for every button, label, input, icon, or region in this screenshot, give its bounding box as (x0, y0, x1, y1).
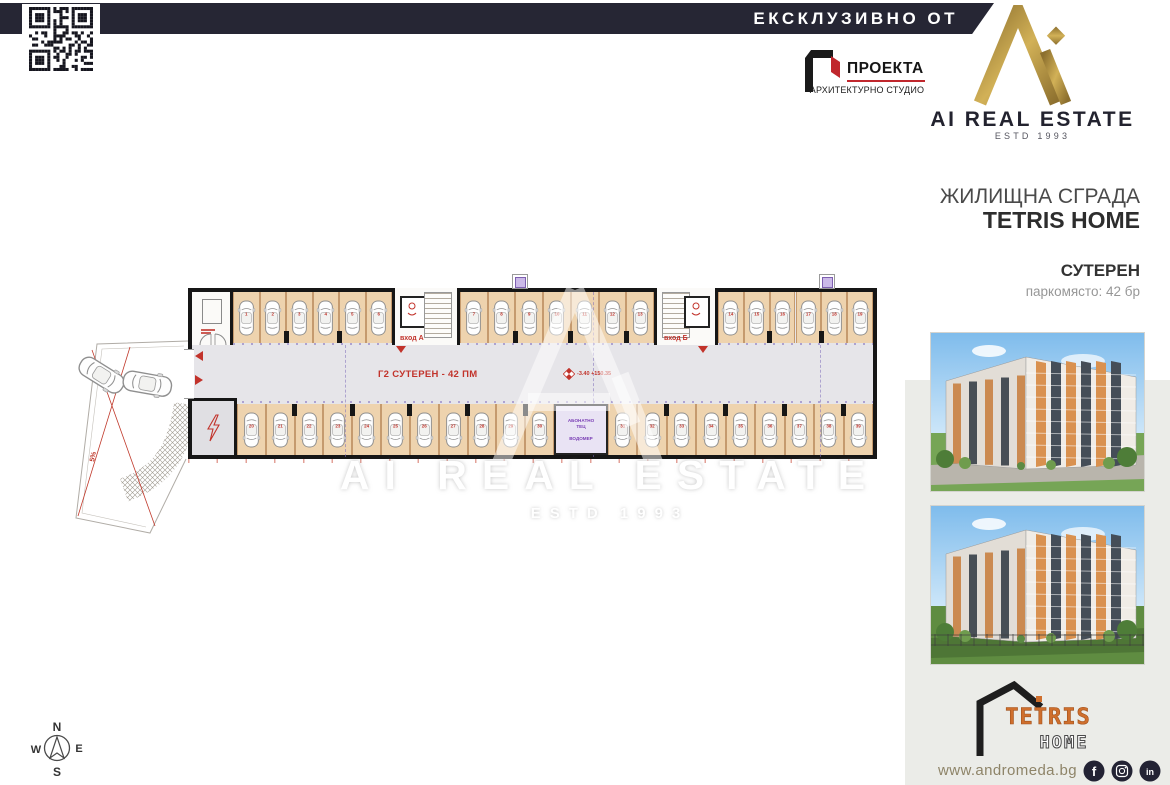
wall-stub (723, 404, 728, 416)
svg-text:f: f (1092, 764, 1097, 779)
exclusive-banner-label: ЕКСКЛУЗИВНО ОТ (753, 9, 958, 29)
utility-label-2: ТЕЦ (576, 424, 585, 430)
car-icon (798, 295, 819, 341)
car-icon (759, 407, 780, 453)
parking-stall: 13 (626, 292, 654, 343)
compass-s: S (53, 765, 61, 779)
stall-number: 15 (754, 312, 759, 317)
stall-number: 10 (554, 312, 559, 317)
vent-shaft-icon (819, 274, 835, 289)
parking-stall: 34 (696, 404, 725, 455)
stall-number: 25 (393, 424, 398, 429)
stall-number: 30 (537, 424, 542, 429)
wall-stub (513, 331, 518, 343)
stall-number: 9 (528, 312, 531, 317)
car-icon (289, 295, 310, 341)
wall-stub (407, 404, 412, 416)
compass-e: E (75, 743, 82, 755)
parking-stall: 10 (543, 292, 571, 343)
direction-wedge-b (698, 346, 708, 353)
stall-number: 20 (249, 424, 254, 429)
car-icon (491, 295, 512, 341)
parking-stall: 21 (266, 404, 295, 455)
parking-stall: 8 (488, 292, 516, 343)
car-icon (612, 407, 633, 453)
facebook-icon: f (1084, 761, 1105, 782)
wall-stub (523, 404, 528, 416)
linkedin-icon: in (1140, 761, 1161, 782)
building-photo-1 (930, 332, 1145, 492)
car-icon (529, 407, 550, 453)
project-parking-info: паркомясто: 42 бр (850, 284, 1140, 299)
parking-stall: 36 (755, 404, 784, 455)
car-icon (356, 407, 377, 453)
car-icon (270, 407, 291, 453)
stall-number: 35 (738, 424, 743, 429)
parking-stall: 11 (571, 292, 599, 343)
stall-number: 18 (832, 312, 837, 317)
parking-stall: 25 (381, 404, 410, 455)
exclusive-banner: ЕКСКЛУЗИВНО ОТ (0, 3, 994, 34)
parking-stall: 30 (525, 404, 554, 455)
car-icon (602, 295, 623, 341)
project-name: TETRIS HOME (850, 208, 1140, 233)
parking-stall: 31 (608, 404, 637, 455)
social-icons: f in (1082, 758, 1164, 784)
stall-number: 17 (806, 312, 811, 317)
accessibility-icon (686, 298, 706, 322)
stall-number: 16 (780, 312, 785, 317)
parking-stall: 6 (366, 292, 393, 343)
direction-wedge-a (396, 346, 406, 353)
stall-number: 8 (500, 312, 503, 317)
car-icon (315, 295, 336, 341)
parking-stall: 20 (237, 404, 266, 455)
watermark-estd: ESTD 1993 (320, 505, 900, 522)
parking-stall: 4 (313, 292, 340, 343)
stall-number: 1 (245, 312, 248, 317)
stall-number: 27 (451, 424, 456, 429)
website-url: www.andromeda.bg (938, 762, 1077, 779)
car-icon (848, 407, 869, 453)
stall-number: 7 (473, 312, 476, 317)
parking-stall: 38 (814, 404, 843, 455)
elevation-label: -3.40 +150.35 (577, 371, 611, 377)
stall-number: 19 (858, 312, 863, 317)
brand-estd: ESTD 1993 (910, 131, 1155, 141)
parking-stall: 12 (599, 292, 627, 343)
car-icon (730, 407, 751, 453)
stall-number: 22 (307, 424, 312, 429)
garage-gate-opening (184, 349, 194, 399)
stall-number: 33 (679, 424, 684, 429)
parking-stall: 9 (515, 292, 543, 343)
car-icon (262, 295, 283, 341)
parking-stall: 16 (770, 292, 796, 343)
car-icon (299, 407, 320, 453)
parking-stall: 39 (844, 404, 873, 455)
stall-number: 5 (351, 312, 354, 317)
stall-number: 39 (856, 424, 861, 429)
car-icon (824, 295, 845, 341)
accessibility-icon (402, 298, 422, 322)
wall-stub (465, 404, 470, 416)
car-icon (471, 407, 492, 453)
parking-stall: 5 (339, 292, 366, 343)
entrance-a: вход А (392, 288, 460, 345)
parking-stall: 24 (352, 404, 381, 455)
wall-stub (568, 331, 573, 343)
parking-stall: 33 (667, 404, 696, 455)
parking-stall: 23 (323, 404, 352, 455)
ramp-arrow-in (195, 351, 203, 361)
project-panel: ЖИЛИЩНА СГРАДА TETRIS HOME СУТЕРЕН парко… (850, 186, 1140, 299)
parking-stall: 14 (718, 292, 744, 343)
stall-number: 11 (582, 312, 587, 317)
compass-rose: N S W E (30, 712, 100, 782)
wall-stub (337, 331, 342, 343)
qr-code (22, 4, 100, 74)
dim-dots-top (233, 343, 873, 345)
car-icon (818, 407, 839, 453)
entrance-b-label: вход Б (664, 335, 688, 342)
parking-stall: 27 (439, 404, 468, 455)
stall-number: 34 (709, 424, 714, 429)
tetris-logo-title: TETRIS (1005, 705, 1090, 730)
car-icon (368, 295, 389, 341)
elevator-a (400, 296, 426, 328)
parking-stall: 17 (796, 292, 822, 343)
parking-stall: 26 (410, 404, 439, 455)
stairs-a (424, 292, 452, 338)
stall-number: 37 (797, 424, 802, 429)
stall-number: 38 (826, 424, 831, 429)
car-icon (772, 295, 793, 341)
car-icon (720, 295, 741, 341)
parking-stall: 15 (744, 292, 770, 343)
tetris-logo-subtitle: HOME (1040, 733, 1089, 753)
parking-stall: 19 (847, 292, 873, 343)
wall-stub (292, 404, 297, 416)
stall-number: 32 (650, 424, 655, 429)
car-icon (671, 407, 692, 453)
dim-dash-3 (820, 345, 821, 457)
qr-code-image (29, 7, 93, 71)
wall-stub (782, 404, 787, 416)
compass-n: N (53, 720, 62, 734)
car-icon (519, 295, 540, 341)
dim-dots-bottom (233, 401, 873, 403)
architect-underline (847, 80, 925, 82)
room-electrical (192, 398, 237, 455)
project-building-type: ЖИЛИЩНА СГРАДА (850, 186, 1140, 208)
ramp-arrow-out (195, 375, 203, 385)
parking-stall: 1 (233, 292, 260, 343)
room-heating-substation: АБОНАТНО ТЕЦ ВОДОМЕР (554, 404, 608, 455)
stall-number: 4 (324, 312, 327, 317)
shaft-box (202, 299, 222, 324)
parking-stall: 28 (468, 404, 497, 455)
watermark-title: AI REAL ESTATE (320, 452, 900, 499)
car-icon (443, 407, 464, 453)
wall-stub (284, 331, 289, 343)
stall-number: 14 (728, 312, 733, 317)
wall-stub (624, 331, 629, 343)
car-icon (414, 407, 435, 453)
wall-stub (664, 404, 669, 416)
utility-label-3: ВОДОМЕР (569, 436, 593, 442)
room-northwest (192, 292, 233, 345)
parking-stall: 7 (460, 292, 488, 343)
instagram-icon (1112, 761, 1133, 782)
car-icon (850, 295, 871, 341)
wall-stub (841, 404, 846, 416)
parking-stall: 35 (726, 404, 755, 455)
stall-number: 31 (620, 424, 625, 429)
stall-number: 36 (767, 424, 772, 429)
stall-number: 6 (377, 312, 380, 317)
car-icon (701, 407, 722, 453)
stall-number: 28 (479, 424, 484, 429)
car-icon (463, 295, 484, 341)
parking-stall: 18 (821, 292, 847, 343)
zone-label: Г2 СУТЕРЕН - 42 ПМ (378, 369, 477, 380)
room-label-dash (201, 329, 215, 331)
building-photo-2 (930, 505, 1145, 665)
parking-stall: 2 (260, 292, 287, 343)
parking-stall: 32 (637, 404, 666, 455)
lightning-icon (205, 414, 221, 442)
car-icon (385, 407, 406, 453)
car-icon (241, 407, 262, 453)
parking-stall: 22 (295, 404, 324, 455)
double-door-icon (198, 332, 228, 346)
ai-real-estate-monogram (966, 5, 1086, 107)
flyer-canvas: ЕКСКЛУЗИВНО ОТ AI REAL ESTATE ESTD 1993 … (0, 0, 1170, 785)
brand-wordmark: AI REAL ESTATE (910, 108, 1155, 132)
stall-number: 29 (508, 424, 513, 429)
stall-number: 3 (298, 312, 301, 317)
stall-number: 26 (422, 424, 427, 429)
stall-number: 2 (271, 312, 274, 317)
entrance-a-label: вход А (400, 335, 424, 342)
wall-stub (767, 331, 772, 343)
parking-stall: 3 (286, 292, 313, 343)
project-level: СУТЕРЕН (850, 261, 1140, 280)
car-icon (789, 407, 810, 453)
wall-stub (819, 331, 824, 343)
entrance-b: вход Б (654, 288, 718, 345)
parking-stall: 29 (496, 404, 525, 455)
car-icon (546, 295, 567, 341)
architect-name: ПРОЕКТА (847, 60, 924, 78)
car-icon (342, 295, 363, 341)
vent-shaft-icon (512, 274, 528, 289)
svg-text:in: in (1146, 767, 1154, 777)
elevation-diamond-icon (563, 368, 575, 380)
parking-stall: 37 (785, 404, 814, 455)
slope-label: 5% (89, 450, 98, 462)
architect-subtitle: АРХИТЕКТУРНО СТУДИО (797, 85, 937, 95)
stall-number: 13 (638, 312, 643, 317)
car-icon (500, 407, 521, 453)
elevator-b (684, 296, 710, 328)
stall-number: 24 (364, 424, 369, 429)
stall-number: 12 (610, 312, 615, 317)
car-icon (746, 295, 767, 341)
wall-stub (350, 404, 355, 416)
stall-number: 23 (335, 424, 340, 429)
car-icon (642, 407, 663, 453)
dim-dash-1 (345, 345, 346, 457)
compass-w: W (31, 744, 42, 756)
stall-number: 21 (278, 424, 283, 429)
car-icon (236, 295, 257, 341)
car-icon (630, 295, 651, 341)
elevation-marker: -3.40 +150.35 (563, 368, 611, 380)
tetris-home-logo: TETRIS HOME (960, 670, 1130, 762)
